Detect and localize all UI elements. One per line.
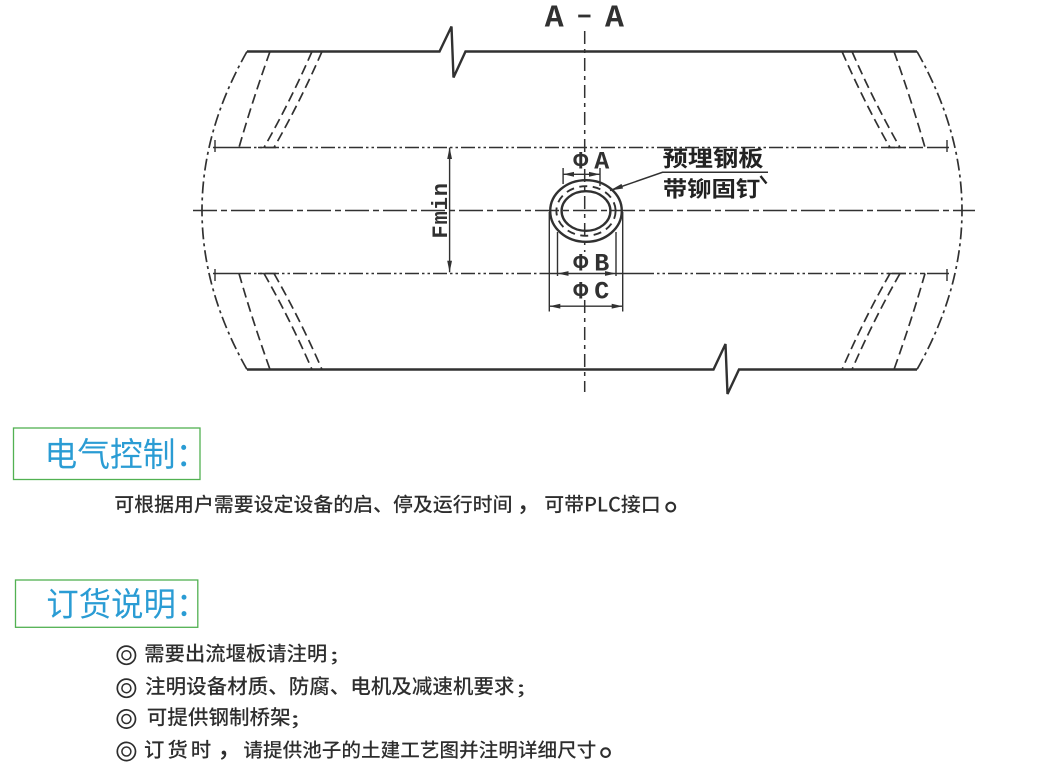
- svg-text:Φ: Φ: [573, 249, 588, 278]
- svg-text:Φ: Φ: [573, 278, 588, 307]
- svg-text:Φ: Φ: [573, 148, 588, 177]
- svg-text:A: A: [594, 148, 609, 177]
- svg-text:Fmin: Fmin: [429, 182, 454, 238]
- svg-text:C: C: [594, 278, 609, 307]
- svg-text:A: A: [545, 1, 564, 36]
- svg-text:A: A: [605, 1, 624, 36]
- svg-text:B: B: [594, 249, 609, 278]
